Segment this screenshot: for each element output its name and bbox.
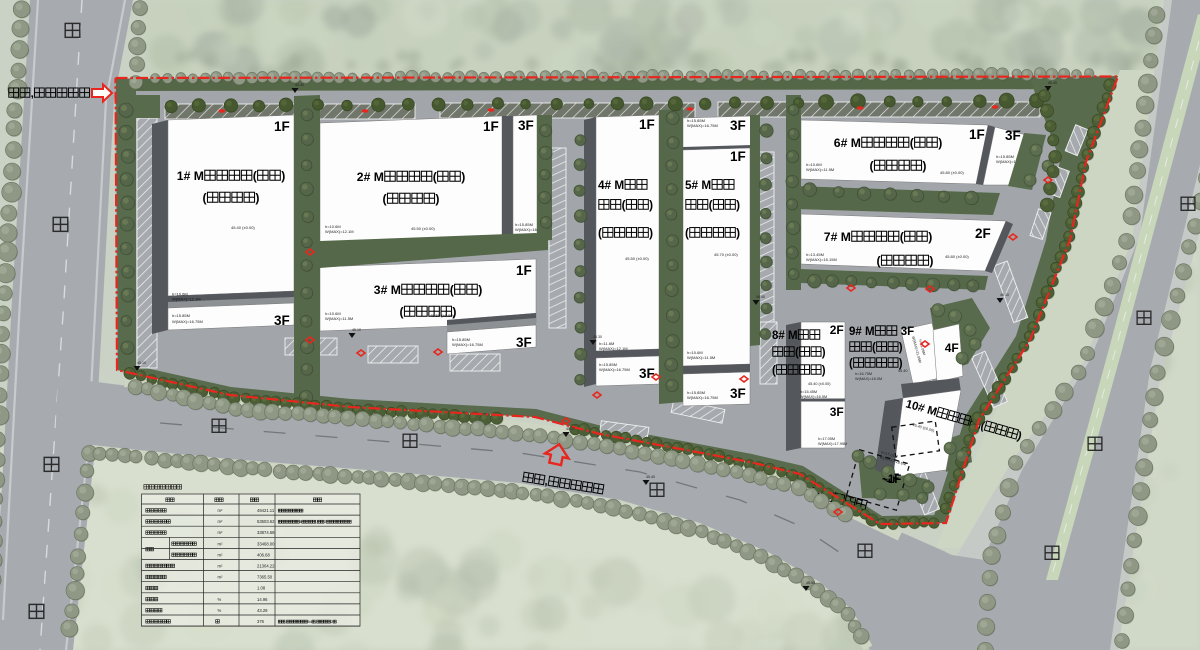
svg-text:m²: m²	[218, 508, 223, 513]
svg-text:W(MAX)=15.15M: W(MAX)=15.15M	[806, 257, 837, 262]
svg-text:W(MAX)=16.75M: W(MAX)=16.75M	[599, 367, 630, 372]
svg-text:%: %	[218, 597, 222, 602]
svg-text:3F: 3F	[639, 366, 655, 381]
svg-text:53503.62: 53503.62	[257, 519, 275, 524]
svg-text:45.10: 45.10	[352, 328, 361, 332]
svg-text:45.50 (±0.00): 45.50 (±0.00)	[411, 226, 435, 231]
svg-text:1F: 1F	[483, 119, 499, 134]
svg-text:W(MAX)=12.1M: W(MAX)=12.1M	[172, 297, 201, 302]
svg-text:5# M: 5# M	[685, 178, 711, 192]
svg-text:1# M: 1# M	[177, 169, 204, 183]
svg-text:m²: m²	[218, 575, 223, 580]
svg-text:4# M: 4# M	[598, 178, 624, 192]
svg-text:(: (	[622, 198, 626, 212]
svg-text:W(MAX)=16.5M: W(MAX)=16.5M	[800, 395, 827, 399]
svg-text:7# M: 7# M	[824, 230, 851, 244]
svg-text:2F: 2F	[975, 226, 991, 241]
svg-text:(: (	[685, 226, 689, 240]
svg-text:): )	[649, 226, 653, 240]
svg-text:W(MAX)=12.1M: W(MAX)=12.1M	[325, 229, 354, 234]
svg-text:W(MAX)=11.5M: W(MAX)=11.5M	[687, 355, 715, 360]
svg-text:45.70 (±0.00): 45.70 (±0.00)	[714, 252, 738, 257]
svg-text:): )	[461, 170, 465, 184]
svg-text:14.96: 14.96	[257, 597, 268, 602]
svg-text:45.40: 45.40	[1048, 81, 1057, 85]
svg-text:(: (	[772, 365, 776, 377]
svg-text:45.50 (±0.00): 45.50 (±0.00)	[625, 256, 649, 261]
svg-text:1.08: 1.08	[257, 586, 266, 591]
svg-text:): )	[822, 347, 826, 359]
svg-text:45.50: 45.50	[806, 581, 815, 585]
svg-text:): )	[649, 198, 653, 212]
svg-text:): )	[255, 191, 259, 205]
svg-text:45.40 (±0.00): 45.40 (±0.00)	[808, 382, 831, 386]
svg-text:45.30: 45.30	[566, 427, 575, 431]
svg-text:3F: 3F	[730, 118, 746, 133]
svg-text:1F: 1F	[516, 263, 532, 278]
svg-text:,: ,	[316, 520, 317, 524]
svg-text:m²: m²	[218, 552, 223, 557]
svg-text:): )	[899, 342, 903, 354]
svg-text:h=15.45M: h=15.45M	[800, 390, 817, 394]
svg-text:W(MAX)=11.5M: W(MAX)=11.5M	[806, 167, 834, 172]
svg-text:8: 8	[300, 520, 302, 524]
svg-text:): )	[281, 169, 285, 183]
svg-text:,: ,	[285, 620, 286, 624]
svg-text:45.50 (±0.00): 45.50 (±0.00)	[430, 313, 454, 318]
svg-text:W(MAX)=16.75M: W(MAX)=16.75M	[687, 123, 718, 128]
svg-text:94: 94	[308, 620, 312, 624]
svg-text:45.40: 45.40	[898, 369, 908, 373]
svg-text:): )	[822, 365, 826, 377]
svg-text:1F: 1F	[639, 117, 655, 132]
svg-text:33468.00: 33468.00	[257, 541, 275, 546]
svg-text:3F: 3F	[1005, 128, 1021, 143]
svg-text:h=15.85M: h=15.85M	[172, 313, 190, 318]
svg-text:1F: 1F	[730, 149, 746, 164]
svg-text:(: (	[598, 226, 602, 240]
svg-text:%: %	[218, 608, 222, 613]
svg-text:m²: m²	[218, 564, 223, 569]
svg-text:3# M: 3# M	[374, 283, 401, 297]
svg-text:376: 376	[257, 619, 265, 624]
svg-text:1F: 1F	[274, 119, 290, 134]
svg-text:W(MAX)=17.95M: W(MAX)=17.95M	[818, 442, 847, 446]
svg-text:.: .	[336, 620, 337, 624]
svg-text:3F: 3F	[730, 386, 746, 401]
svg-text:2F: 2F	[830, 323, 844, 337]
svg-text:7365.50: 7365.50	[257, 575, 273, 580]
svg-text:): )	[922, 159, 926, 173]
svg-text:2# M: 2# M	[357, 170, 384, 184]
svg-text:21304.22: 21304.22	[257, 564, 275, 569]
svg-text:,: ,	[31, 88, 34, 100]
svg-text:46.10: 46.10	[1000, 293, 1009, 297]
svg-text:-1F: -1F	[884, 474, 901, 486]
svg-text:45.10: 45.10	[137, 361, 146, 365]
svg-text:): )	[928, 230, 932, 244]
svg-text:6# M: 6# M	[834, 136, 861, 150]
svg-text:3F: 3F	[274, 313, 290, 328]
svg-text:8# M: 8# M	[772, 330, 798, 342]
svg-text:49421.11: 49421.11	[257, 508, 275, 513]
svg-text:406.68: 406.68	[257, 552, 270, 557]
svg-text:,: ,	[315, 620, 316, 624]
svg-text:33874.68: 33874.68	[257, 530, 275, 535]
svg-text:W(MAX)=11.5M: W(MAX)=11.5M	[325, 316, 353, 321]
svg-text:W(MAX)=16.75M: W(MAX)=16.75M	[687, 395, 718, 400]
svg-text:W(MAX)=16.75M: W(MAX)=16.75M	[452, 342, 483, 347]
svg-text:): )	[736, 198, 740, 212]
svg-text:W(MAX)=18.0M: W(MAX)=18.0M	[855, 377, 882, 381]
svg-text:2: 2	[331, 620, 333, 624]
svg-text:(: (	[849, 358, 853, 370]
svg-text:3F: 3F	[518, 118, 534, 133]
svg-text:(: (	[709, 198, 713, 212]
svg-text:45.40: 45.40	[646, 475, 655, 479]
svg-text:1F: 1F	[969, 127, 985, 142]
svg-text:45.30: 45.30	[593, 335, 602, 339]
svg-text:3F: 3F	[830, 405, 844, 419]
svg-text:m²: m²	[218, 530, 223, 535]
svg-text:(: (	[795, 347, 799, 359]
svg-text:W(MAX)=12.1M: W(MAX)=12.1M	[599, 346, 628, 351]
svg-text:W(MAX)=16.75M: W(MAX)=16.75M	[172, 319, 203, 324]
svg-text:): )	[435, 192, 439, 206]
svg-text:2: 2	[324, 520, 326, 524]
svg-text:3F: 3F	[516, 335, 532, 350]
svg-text:): )	[929, 254, 933, 268]
svg-text:44.40: 44.40	[295, 83, 304, 87]
svg-text:): )	[938, 136, 942, 150]
svg-text:45.40 (±0.00): 45.40 (±0.00)	[231, 225, 255, 230]
svg-text:(: (	[872, 342, 876, 354]
svg-text:45.80 (±0.00): 45.80 (±0.00)	[945, 254, 969, 259]
svg-text:): )	[736, 226, 740, 240]
svg-text:): )	[478, 283, 482, 297]
svg-text:9# M: 9# M	[849, 326, 875, 338]
svg-text:m²: m²	[218, 519, 223, 524]
svg-text:46.40: 46.40	[756, 295, 765, 299]
svg-text:h=16.75M: h=16.75M	[855, 372, 872, 376]
svg-text:4F: 4F	[945, 341, 959, 355]
svg-text:m²: m²	[218, 541, 223, 546]
svg-text:h=17.05M: h=17.05M	[818, 437, 835, 441]
svg-text:43.29: 43.29	[257, 608, 268, 613]
svg-text:45.80 (±0.00): 45.80 (±0.00)	[940, 170, 964, 175]
